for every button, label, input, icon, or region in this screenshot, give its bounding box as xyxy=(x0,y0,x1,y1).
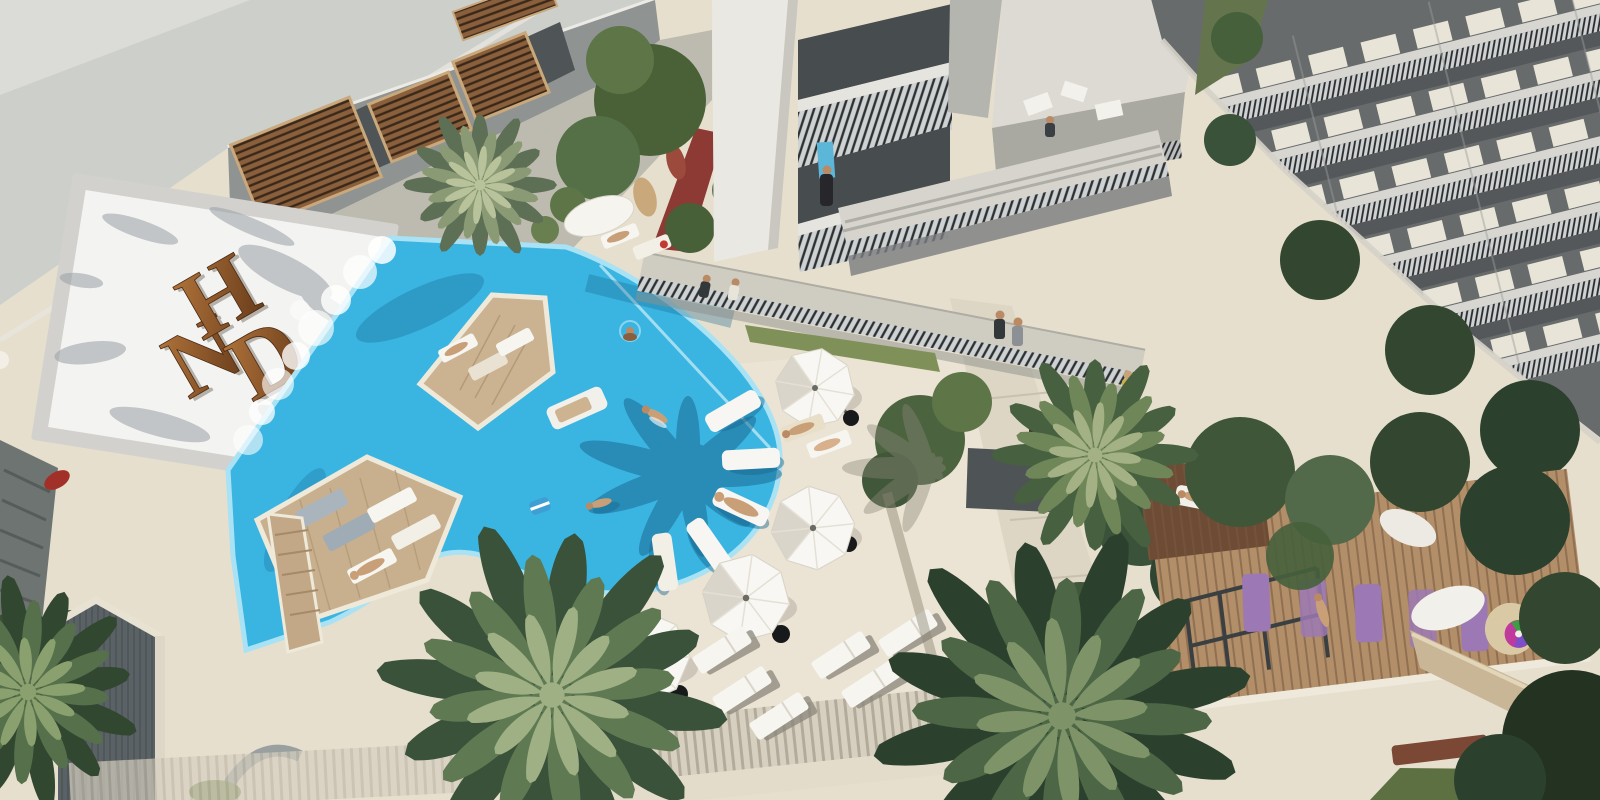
scene-canvas: N H D xyxy=(0,0,1600,800)
render-viewport: N H D xyxy=(0,0,1600,800)
